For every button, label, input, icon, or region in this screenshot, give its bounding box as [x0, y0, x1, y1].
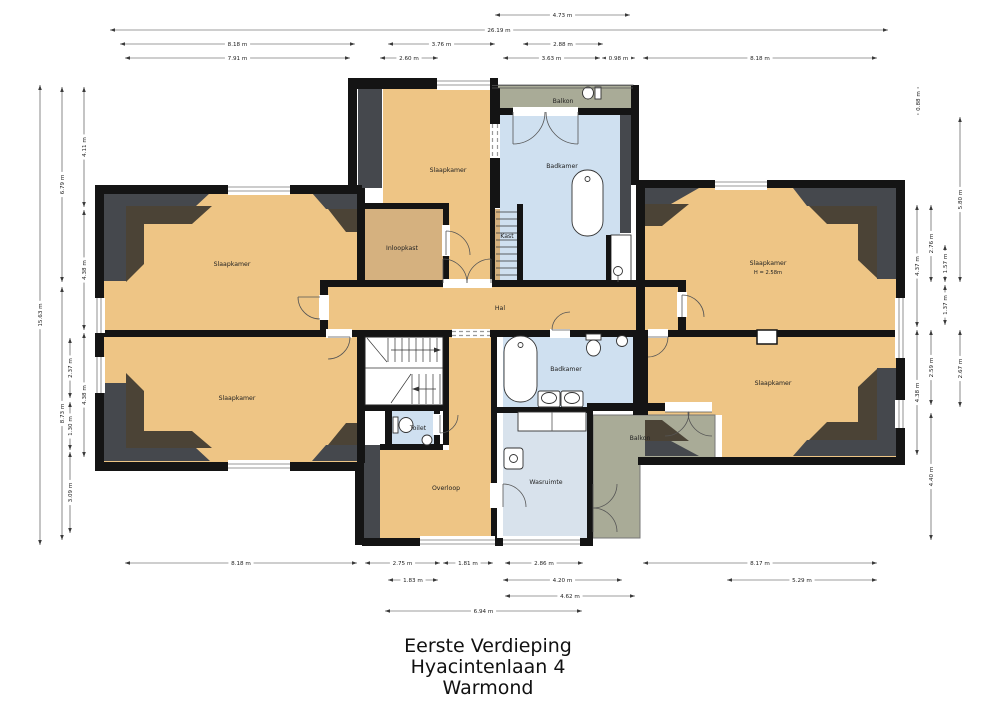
- svg-text:4.38 m: 4.38 m: [915, 383, 921, 403]
- washing-machine: [504, 448, 523, 469]
- dimension-vertical: 2.76 m: [927, 205, 936, 282]
- window: [93, 298, 105, 333]
- room-label-kast: Kast: [500, 233, 514, 240]
- dimension-horizontal: 26.19 m: [110, 26, 888, 35]
- dimension-label: 3.09 m: [66, 480, 75, 505]
- dimension-horizontal: 2.88 m: [523, 40, 603, 49]
- room-label-slaapkamer-tc: Slaapkamer: [430, 167, 467, 174]
- room-label-balkon-bottom: Balkon: [630, 435, 651, 442]
- dimension-horizontal: 5.29 m: [727, 576, 877, 585]
- dimension-horizontal: 7.91 m: [125, 54, 350, 63]
- room-label-slaapkamer-tr: Slaapkamer: [750, 260, 787, 267]
- dimension-horizontal: 3.63 m: [503, 54, 600, 63]
- dimension-vertical: 1.37 m: [941, 285, 950, 325]
- window: [420, 536, 495, 548]
- room-wasruimte: [503, 413, 587, 538]
- dimension-label: 5.29 m: [789, 576, 814, 585]
- window: [93, 357, 105, 393]
- staircase: [365, 337, 443, 405]
- window: [895, 298, 907, 358]
- dimension-vertical: 2.67 m: [956, 330, 965, 407]
- dimension-label: 4.62 m: [557, 592, 582, 601]
- dimension-horizontal: 8.18 m: [125, 559, 357, 568]
- svg-text:2.76 m: 2.76 m: [929, 234, 935, 254]
- dimension-horizontal: 8.17 m: [643, 559, 877, 568]
- svg-text:4.20 m: 4.20 m: [553, 578, 573, 584]
- svg-text:7.91 m: 7.91 m: [228, 56, 248, 62]
- svg-text:2.75 m: 2.75 m: [393, 561, 413, 567]
- dimension-horizontal: 4.62 m: [505, 592, 635, 601]
- window: [503, 536, 580, 548]
- dimension-horizontal: 4.20 m: [503, 576, 622, 585]
- room-label-slaapkamer-bl: Slaapkamer: [219, 395, 256, 402]
- svg-text:2.67 m: 2.67 m: [958, 359, 964, 379]
- svg-text:3.63 m: 3.63 m: [542, 56, 562, 62]
- svg-text:1.83 m: 1.83 m: [403, 578, 423, 584]
- dimension-label: 2.59 m: [927, 355, 936, 380]
- svg-text:4.11 m: 4.11 m: [82, 137, 88, 157]
- dimension-label: 2.76 m: [927, 231, 936, 256]
- dimension-label: 4.20 m: [550, 576, 575, 585]
- dimension-label: 7.91 m: [225, 54, 250, 63]
- dimension-label: 4.11 m: [80, 134, 89, 159]
- sink: [561, 391, 583, 407]
- window: [437, 76, 490, 90]
- dimension-vertical: 2.37 m: [66, 338, 75, 398]
- svg-text:4.37 m: 4.37 m: [915, 256, 921, 276]
- svg-text:2.59 m: 2.59 m: [929, 358, 935, 378]
- svg-text:6.79 m: 6.79 m: [60, 175, 66, 195]
- title-address: Hyacintenlaan 4: [0, 657, 976, 678]
- room-label-hal: Hal: [495, 305, 505, 312]
- svg-text:5.80 m: 5.80 m: [958, 190, 964, 210]
- svg-text:4.38 m: 4.38 m: [82, 385, 88, 405]
- dimension-label: 8.18 m: [228, 559, 253, 568]
- room-label-balkon-top: Balkon: [553, 98, 574, 105]
- faucet: [585, 177, 590, 182]
- dimension-label: 4.38 m: [80, 382, 89, 407]
- window: [228, 183, 290, 195]
- dimension-label: 4.38 m: [80, 257, 89, 282]
- svg-text:4.38 m: 4.38 m: [82, 260, 88, 280]
- room-label-badkamer-top: Badkamer: [546, 163, 578, 170]
- svg-text:8.18 m: 8.18 m: [750, 56, 770, 62]
- dimension-vertical: 4.40 m: [927, 413, 936, 540]
- dimension-vertical: 4.38 m: [80, 210, 89, 330]
- dimension-label: 4.37 m: [913, 253, 922, 278]
- svg-text:8.18 m: 8.18 m: [228, 42, 248, 48]
- dimension-horizontal: 6.94 m: [385, 607, 582, 616]
- dimension-label: 6.94 m: [471, 607, 496, 616]
- svg-text:0.88 m: 0.88 m: [916, 91, 922, 111]
- dimension-horizontal: 1.83 m: [388, 576, 438, 585]
- window: [715, 178, 767, 190]
- svg-text:2.37 m: 2.37 m: [68, 358, 74, 378]
- dimension-label: 4.40 m: [927, 464, 936, 489]
- wash-basin: [422, 435, 432, 445]
- dimension-label: 6.79 m: [58, 172, 67, 197]
- dimension-vertical: 4.11 m: [80, 87, 89, 207]
- floorplan-drawing: SlaapkamerSlaapkamerSlaapkamerInloopkast…: [0, 0, 1000, 707]
- faucet: [518, 343, 523, 348]
- dimension-label: 1.37 m: [941, 292, 950, 317]
- svg-text:2.60 m: 2.60 m: [399, 56, 419, 62]
- room-label-wasruimte: Wasruimte: [529, 479, 562, 486]
- dimension-label: 5.80 m: [956, 187, 965, 212]
- svg-text:6.94 m: 6.94 m: [474, 609, 494, 615]
- svg-text:1.81 m: 1.81 m: [458, 561, 478, 567]
- svg-text:1.37 m: 1.37 m: [943, 295, 949, 315]
- dimension-vertical: 1.57 m: [941, 245, 950, 282]
- floorplan-page: SlaapkamerSlaapkamerSlaapkamerInloopkast…: [0, 0, 1000, 707]
- svg-text:15.63 m: 15.63 m: [38, 303, 44, 326]
- dimension-label: 1.57 m: [941, 251, 950, 276]
- dimension-label: 2.37 m: [66, 355, 75, 380]
- room-label-inloopkast: Inloopkast: [386, 245, 418, 252]
- svg-text:1.57 m: 1.57 m: [943, 254, 949, 274]
- room-label-toilet: Toilet: [409, 425, 427, 432]
- window: [228, 460, 290, 472]
- plan-title: Eerste Verdieping Hyacintenlaan 4 Warmon…: [0, 636, 976, 699]
- svg-text:4.73 m: 4.73 m: [553, 13, 573, 19]
- room-label-slaapkamer-tl: Slaapkamer: [214, 261, 251, 268]
- dimension-horizontal: 4.73 m: [495, 11, 630, 20]
- dimension-label: 1.30 m: [66, 413, 75, 438]
- svg-text:3.76 m: 3.76 m: [432, 42, 452, 48]
- svg-text:4.40 m: 4.40 m: [929, 467, 935, 487]
- dimension-vertical: 5.80 m: [956, 117, 965, 282]
- svg-text:8.17 m: 8.17 m: [750, 561, 770, 567]
- dimension-label: 4.73 m: [550, 11, 575, 20]
- dimension-label: 3.76 m: [429, 40, 454, 49]
- svg-text:8.73 m: 8.73 m: [60, 404, 66, 424]
- room-height-slaapkamer-tr: H = 2.58m: [754, 270, 782, 276]
- dimension-horizontal: 8.18 m: [120, 40, 355, 49]
- dimension-label: 2.86 m: [531, 559, 556, 568]
- dimension-horizontal: 3.76 m: [388, 40, 495, 49]
- dimension-label: 26.19 m: [485, 26, 513, 35]
- dimension-vertical: 3.09 m: [66, 452, 75, 533]
- dimension-label: 1.81 m: [455, 559, 480, 568]
- toilet-fixture: [583, 87, 602, 99]
- title-floor: Eerste Verdieping: [0, 636, 976, 657]
- dimension-label: 2.60 m: [396, 54, 421, 63]
- dimension-label: 8.17 m: [747, 559, 772, 568]
- dimension-label: 8.18 m: [747, 54, 772, 63]
- dimension-vertical: 2.59 m: [927, 330, 936, 405]
- dimension-label: 15.63 m: [36, 301, 45, 329]
- dimension-label: 8.73 m: [58, 401, 67, 426]
- title-city: Warmond: [0, 678, 976, 699]
- toilet-fixture: [586, 334, 601, 356]
- sink: [538, 391, 560, 407]
- dimension-vertical: 1.30 m: [66, 402, 75, 450]
- dimension-horizontal: 0.98 m: [602, 54, 635, 63]
- dimension-vertical: 4.38 m: [80, 333, 89, 457]
- dimension-vertical: 8.73 m: [58, 287, 67, 540]
- dimension-horizontal: 1.81 m: [443, 559, 493, 568]
- dimension-label: 4.38 m: [913, 380, 922, 405]
- dimension-label: 0.98 m: [606, 54, 631, 63]
- dimension-vertical: 6.79 m: [58, 87, 67, 282]
- svg-text:2.88 m: 2.88 m: [553, 42, 573, 48]
- svg-text:8.18 m: 8.18 m: [231, 561, 251, 567]
- dimension-vertical: 4.38 m: [913, 330, 922, 455]
- svg-text:26.19 m: 26.19 m: [487, 28, 510, 34]
- svg-text:5.29 m: 5.29 m: [792, 578, 812, 584]
- svg-text:3.09 m: 3.09 m: [68, 483, 74, 503]
- wash-basin: [617, 336, 628, 347]
- dimension-label: 3.63 m: [539, 54, 564, 63]
- closet-cabinet: [518, 412, 586, 431]
- dimension-vertical: 0.88 m: [914, 87, 923, 115]
- wall-void: [757, 330, 777, 344]
- svg-text:4.62 m: 4.62 m: [560, 594, 580, 600]
- dimension-vertical: 4.37 m: [913, 205, 922, 327]
- dimension-horizontal: 2.86 m: [505, 559, 583, 568]
- dimension-label: 2.75 m: [390, 559, 415, 568]
- dimension-horizontal: 8.18 m: [643, 54, 877, 63]
- dimension-horizontal: 2.75 m: [365, 559, 440, 568]
- dimension-label: 8.18 m: [225, 40, 250, 49]
- window: [895, 400, 907, 428]
- room-label-slaapkamer-br: Slaapkamer: [755, 380, 792, 387]
- svg-text:2.86 m: 2.86 m: [534, 561, 554, 567]
- dimension-label: 2.67 m: [956, 356, 965, 381]
- dimension-vertical: 15.63 m: [36, 85, 45, 545]
- dimension-label: 2.88 m: [550, 40, 575, 49]
- room-label-badkamer-bottom: Badkamer: [550, 366, 582, 373]
- room-label-overloop: Overloop: [432, 485, 460, 492]
- shower-niche: [611, 235, 631, 283]
- dimension-label: 1.83 m: [400, 576, 425, 585]
- svg-text:0.98 m: 0.98 m: [609, 56, 629, 62]
- dimension-label: 0.88 m: [914, 88, 923, 113]
- svg-text:1.30 m: 1.30 m: [68, 416, 74, 436]
- dimension-horizontal: 2.60 m: [380, 54, 438, 63]
